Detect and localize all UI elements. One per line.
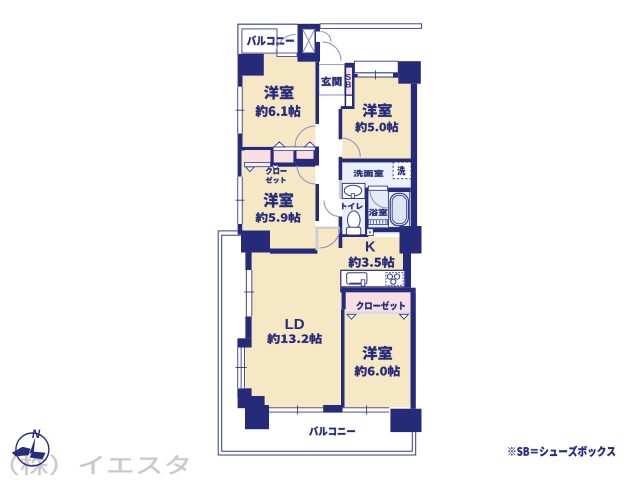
svg-text:N: N xyxy=(32,429,41,441)
svg-text:B: B xyxy=(345,79,351,89)
svg-text:K: K xyxy=(365,239,376,255)
svg-text:LD: LD xyxy=(285,316,305,333)
